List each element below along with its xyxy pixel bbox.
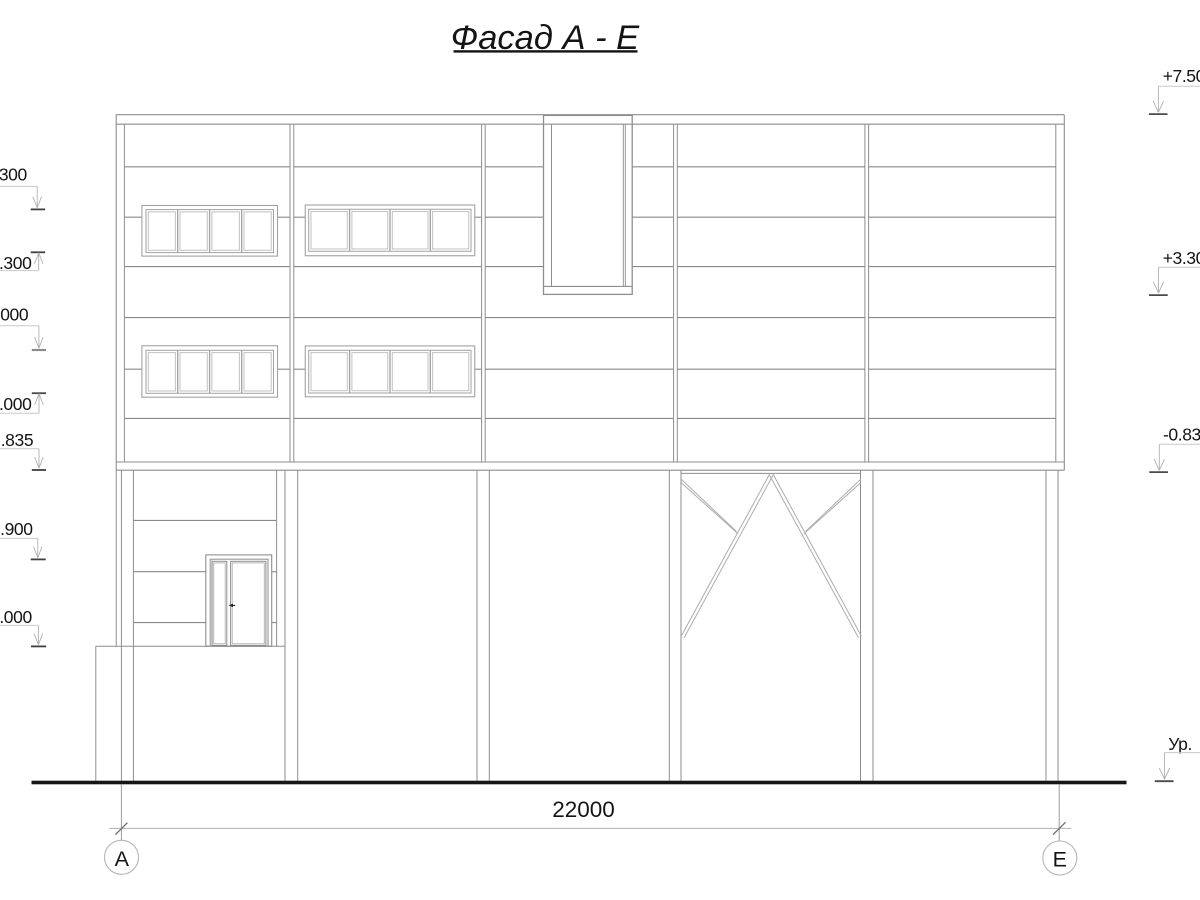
svg-text:.835: .835 (1, 430, 33, 450)
svg-text:+7.50: +7.50 (1163, 66, 1200, 86)
svg-text:.000: .000 (0, 607, 32, 627)
svg-text:300: 300 (0, 164, 27, 184)
svg-text:.000: .000 (0, 394, 32, 414)
svg-text:+3.30: +3.30 (1163, 248, 1200, 268)
svg-text:000: 000 (0, 305, 29, 325)
svg-text:22000: 22000 (552, 797, 615, 822)
svg-text:-0.83: -0.83 (1163, 425, 1200, 445)
svg-text:Ур.: Ур. (1168, 734, 1192, 754)
svg-text:Е: Е (1053, 848, 1067, 872)
svg-text:.900: .900 (0, 519, 33, 539)
svg-text:А: А (115, 847, 130, 871)
